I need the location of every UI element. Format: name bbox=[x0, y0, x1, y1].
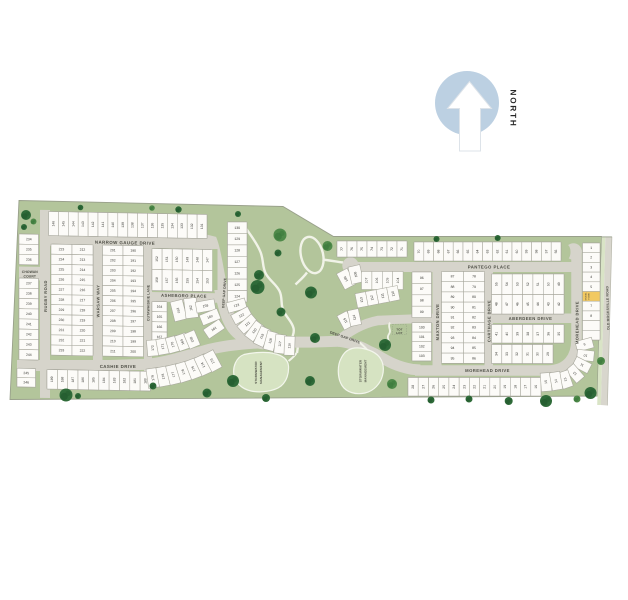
svg-text:HOME: HOME bbox=[588, 292, 591, 299]
svg-text:57: 57 bbox=[544, 250, 548, 254]
svg-text:29: 29 bbox=[546, 352, 550, 356]
svg-text:154: 154 bbox=[195, 278, 199, 284]
svg-text:232: 232 bbox=[59, 338, 65, 342]
svg-text:8: 8 bbox=[590, 314, 592, 318]
svg-text:64: 64 bbox=[476, 250, 480, 254]
svg-text:CHOWAN: CHOWAN bbox=[22, 270, 38, 274]
svg-text:75: 75 bbox=[360, 247, 364, 251]
svg-text:97: 97 bbox=[420, 287, 424, 291]
svg-text:181: 181 bbox=[133, 378, 137, 384]
svg-text:191: 191 bbox=[130, 259, 136, 263]
svg-text:193: 193 bbox=[130, 279, 136, 283]
svg-text:59: 59 bbox=[525, 250, 529, 254]
svg-text:19: 19 bbox=[503, 385, 507, 389]
svg-text:45: 45 bbox=[526, 302, 530, 306]
svg-text:MOREHEAD DRIVE: MOREHEAD DRIVE bbox=[574, 301, 579, 344]
svg-text:158: 158 bbox=[155, 277, 159, 283]
svg-text:70: 70 bbox=[417, 250, 421, 254]
svg-text:197: 197 bbox=[130, 319, 136, 323]
svg-text:141: 141 bbox=[101, 222, 105, 228]
svg-text:54: 54 bbox=[505, 282, 509, 286]
svg-text:157: 157 bbox=[165, 277, 169, 283]
svg-text:198: 198 bbox=[130, 329, 136, 333]
svg-text:185: 185 bbox=[92, 377, 96, 383]
svg-text:153: 153 bbox=[205, 278, 209, 284]
svg-text:94: 94 bbox=[451, 346, 455, 350]
svg-text:39: 39 bbox=[515, 332, 519, 336]
svg-text:187: 187 bbox=[71, 377, 75, 383]
svg-text:7: 7 bbox=[590, 304, 592, 308]
svg-text:195: 195 bbox=[130, 299, 136, 303]
svg-text:117: 117 bbox=[278, 341, 283, 347]
svg-text:RUGBY ROAD: RUGBY ROAD bbox=[43, 280, 48, 312]
svg-text:210: 210 bbox=[110, 339, 116, 343]
svg-text:186: 186 bbox=[81, 377, 85, 383]
svg-text:NORTH: NORTH bbox=[509, 90, 518, 128]
svg-text:34: 34 bbox=[495, 352, 499, 356]
svg-text:24: 24 bbox=[452, 385, 456, 389]
svg-text:43: 43 bbox=[547, 302, 551, 306]
svg-text:224: 224 bbox=[59, 257, 65, 261]
svg-text:228: 228 bbox=[59, 298, 65, 302]
svg-text:98: 98 bbox=[420, 299, 424, 303]
svg-text:STORMWATER: STORMWATER bbox=[359, 359, 363, 382]
svg-text:55: 55 bbox=[495, 282, 499, 286]
svg-text:MOREHEAD DRIVE: MOREHEAD DRIVE bbox=[465, 368, 510, 373]
svg-text:MANAGEMENT: MANAGEMENT bbox=[364, 360, 368, 383]
svg-text:65: 65 bbox=[466, 250, 470, 254]
svg-text:MAXTON DRIVE: MAXTON DRIVE bbox=[435, 304, 440, 341]
svg-text:201: 201 bbox=[110, 248, 116, 252]
svg-text:242: 242 bbox=[26, 332, 32, 336]
svg-text:16: 16 bbox=[534, 385, 538, 389]
svg-text:128: 128 bbox=[234, 249, 240, 253]
svg-text:42: 42 bbox=[557, 302, 561, 306]
svg-text:139: 139 bbox=[121, 222, 125, 228]
svg-text:140: 140 bbox=[111, 222, 115, 228]
svg-text:CASHIE DRIVE: CASHIE DRIVE bbox=[100, 364, 137, 369]
svg-text:WARSAW WAY: WARSAW WAY bbox=[96, 285, 101, 318]
svg-text:234: 234 bbox=[26, 237, 32, 241]
svg-text:ASHEBORO PLACE: ASHEBORO PLACE bbox=[161, 293, 207, 299]
svg-text:MANAGEMENT: MANAGEMENT bbox=[259, 361, 263, 384]
svg-text:142: 142 bbox=[91, 221, 95, 227]
svg-text:74: 74 bbox=[370, 247, 374, 251]
svg-text:189: 189 bbox=[50, 376, 54, 382]
svg-text:93: 93 bbox=[451, 336, 455, 340]
svg-text:4: 4 bbox=[590, 275, 592, 279]
svg-text:221: 221 bbox=[80, 339, 86, 343]
svg-text:46: 46 bbox=[515, 302, 519, 306]
svg-text:143: 143 bbox=[81, 221, 85, 227]
svg-text:73: 73 bbox=[380, 247, 384, 251]
svg-text:78: 78 bbox=[472, 275, 476, 279]
svg-text:22: 22 bbox=[473, 385, 477, 389]
svg-text:21: 21 bbox=[483, 385, 487, 389]
svg-text:135: 135 bbox=[160, 223, 164, 229]
svg-text:103: 103 bbox=[419, 354, 425, 358]
svg-text:218: 218 bbox=[80, 308, 86, 312]
svg-text:58: 58 bbox=[535, 250, 539, 254]
svg-text:241: 241 bbox=[26, 322, 32, 326]
svg-text:PANTEGO PLACE: PANTEGO PLACE bbox=[468, 265, 511, 270]
svg-text:33: 33 bbox=[505, 352, 509, 356]
svg-text:164: 164 bbox=[157, 305, 163, 309]
svg-text:220: 220 bbox=[80, 329, 86, 333]
svg-text:MODEL: MODEL bbox=[585, 292, 588, 301]
svg-text:238: 238 bbox=[26, 292, 32, 296]
svg-text:116: 116 bbox=[287, 343, 291, 349]
svg-text:26: 26 bbox=[432, 385, 436, 389]
svg-text:203: 203 bbox=[110, 268, 116, 272]
svg-text:166: 166 bbox=[157, 325, 163, 329]
svg-text:52: 52 bbox=[526, 282, 530, 286]
svg-text:246: 246 bbox=[23, 380, 29, 384]
svg-text:149: 149 bbox=[185, 257, 189, 263]
svg-text:86: 86 bbox=[472, 356, 476, 360]
svg-text:244: 244 bbox=[26, 353, 32, 357]
svg-text:136: 136 bbox=[151, 223, 155, 229]
svg-text:196: 196 bbox=[130, 309, 136, 313]
svg-text:95: 95 bbox=[451, 356, 455, 360]
svg-text:83: 83 bbox=[472, 326, 476, 330]
svg-text:44: 44 bbox=[536, 302, 540, 306]
svg-text:206: 206 bbox=[110, 299, 116, 303]
svg-text:106: 106 bbox=[375, 278, 379, 284]
svg-text:2: 2 bbox=[590, 256, 592, 260]
svg-text:212: 212 bbox=[80, 248, 86, 252]
svg-text:213: 213 bbox=[80, 258, 86, 262]
svg-text:200: 200 bbox=[130, 350, 136, 354]
svg-text:80: 80 bbox=[472, 295, 476, 299]
svg-text:226: 226 bbox=[59, 278, 65, 282]
svg-text:20: 20 bbox=[493, 385, 497, 389]
svg-text:81: 81 bbox=[472, 305, 476, 309]
svg-text:41: 41 bbox=[495, 332, 499, 336]
svg-text:69: 69 bbox=[427, 250, 431, 254]
svg-text:165: 165 bbox=[157, 315, 163, 319]
svg-text:156: 156 bbox=[175, 277, 179, 283]
svg-text:222: 222 bbox=[80, 349, 86, 353]
svg-text:30: 30 bbox=[536, 352, 540, 356]
svg-text:190: 190 bbox=[130, 249, 136, 253]
svg-text:229: 229 bbox=[59, 308, 65, 312]
svg-text:67: 67 bbox=[446, 250, 450, 254]
svg-text:207: 207 bbox=[110, 309, 116, 313]
svg-text:82: 82 bbox=[472, 316, 476, 320]
svg-text:133: 133 bbox=[180, 223, 184, 229]
svg-text:225: 225 bbox=[59, 268, 65, 272]
svg-text:3: 3 bbox=[590, 265, 592, 269]
svg-text:180: 180 bbox=[143, 378, 147, 384]
svg-text:155: 155 bbox=[185, 278, 189, 284]
svg-text:87: 87 bbox=[451, 275, 455, 279]
svg-text:151: 151 bbox=[165, 256, 169, 262]
svg-text:131: 131 bbox=[200, 223, 204, 229]
svg-text:89: 89 bbox=[451, 295, 455, 299]
svg-text:239: 239 bbox=[26, 302, 32, 306]
svg-text:76: 76 bbox=[350, 247, 354, 251]
svg-text:63: 63 bbox=[486, 250, 490, 254]
svg-text:150: 150 bbox=[175, 256, 179, 262]
svg-text:18: 18 bbox=[513, 385, 517, 389]
svg-text:99: 99 bbox=[420, 310, 424, 314]
svg-text:90: 90 bbox=[451, 305, 455, 309]
svg-text:84: 84 bbox=[472, 336, 476, 340]
svg-text:184: 184 bbox=[102, 377, 106, 383]
svg-text:50: 50 bbox=[547, 282, 551, 286]
svg-text:152: 152 bbox=[155, 256, 159, 262]
svg-text:CUTAWHISKIE LANE: CUTAWHISKIE LANE bbox=[146, 284, 150, 321]
svg-text:CARTHAGE DRIVE: CARTHAGE DRIVE bbox=[486, 300, 491, 342]
svg-text:211: 211 bbox=[110, 349, 116, 353]
svg-text:102: 102 bbox=[419, 345, 425, 349]
svg-text:219: 219 bbox=[80, 318, 86, 322]
svg-text:72: 72 bbox=[390, 247, 394, 251]
svg-text:37: 37 bbox=[536, 332, 540, 336]
svg-text:124: 124 bbox=[234, 294, 240, 298]
svg-text:205: 205 bbox=[110, 289, 116, 293]
svg-text:61: 61 bbox=[505, 250, 509, 254]
svg-text:53: 53 bbox=[515, 282, 519, 286]
svg-text:235: 235 bbox=[26, 247, 32, 251]
svg-text:100: 100 bbox=[419, 325, 425, 329]
svg-text:147: 147 bbox=[205, 257, 209, 263]
svg-text:27: 27 bbox=[421, 385, 425, 389]
svg-text:216: 216 bbox=[80, 288, 86, 292]
svg-text:88: 88 bbox=[451, 285, 455, 289]
svg-text:134: 134 bbox=[170, 223, 174, 229]
svg-text:199: 199 bbox=[130, 340, 136, 344]
svg-text:146: 146 bbox=[52, 221, 56, 227]
svg-text:104: 104 bbox=[396, 278, 400, 284]
svg-text:209: 209 bbox=[110, 329, 116, 333]
svg-text:56: 56 bbox=[554, 250, 558, 254]
svg-text:227: 227 bbox=[59, 288, 65, 292]
svg-text:COURT: COURT bbox=[24, 274, 37, 278]
svg-text:36: 36 bbox=[547, 332, 551, 336]
svg-text:125: 125 bbox=[234, 283, 240, 287]
svg-text:62: 62 bbox=[495, 250, 499, 254]
svg-text:5: 5 bbox=[590, 285, 592, 289]
svg-text:31: 31 bbox=[525, 352, 529, 356]
svg-text:38: 38 bbox=[526, 332, 530, 336]
svg-text:1: 1 bbox=[590, 246, 592, 250]
svg-text:48: 48 bbox=[495, 302, 499, 306]
svg-text:182: 182 bbox=[123, 378, 127, 384]
svg-text:236: 236 bbox=[26, 258, 32, 262]
svg-text:188: 188 bbox=[61, 377, 65, 383]
svg-text:129: 129 bbox=[234, 237, 240, 241]
svg-text:237: 237 bbox=[26, 281, 32, 285]
svg-text:LOT: LOT bbox=[396, 331, 403, 335]
svg-text:32: 32 bbox=[515, 352, 519, 356]
svg-text:35: 35 bbox=[557, 332, 561, 336]
svg-text:107: 107 bbox=[365, 278, 369, 284]
svg-text:STORMWATER: STORMWATER bbox=[254, 361, 258, 384]
svg-text:202: 202 bbox=[110, 258, 116, 262]
svg-text:243: 243 bbox=[26, 343, 32, 347]
svg-text:183: 183 bbox=[112, 377, 116, 383]
svg-text:127: 127 bbox=[234, 260, 240, 264]
svg-text:138: 138 bbox=[131, 222, 135, 228]
svg-text:49: 49 bbox=[557, 282, 561, 286]
svg-text:60: 60 bbox=[515, 250, 519, 254]
svg-text:23: 23 bbox=[462, 385, 466, 389]
svg-text:204: 204 bbox=[110, 279, 116, 283]
svg-text:17: 17 bbox=[524, 385, 528, 389]
svg-text:144: 144 bbox=[71, 221, 75, 227]
svg-text:192: 192 bbox=[130, 269, 136, 273]
svg-text:132: 132 bbox=[190, 223, 194, 229]
svg-text:240: 240 bbox=[26, 312, 32, 316]
svg-text:85: 85 bbox=[472, 346, 476, 350]
svg-text:223: 223 bbox=[59, 247, 65, 251]
svg-text:47: 47 bbox=[505, 302, 509, 306]
svg-text:105: 105 bbox=[386, 278, 390, 284]
svg-text:172: 172 bbox=[151, 345, 155, 351]
svg-text:25: 25 bbox=[442, 385, 446, 389]
svg-text:10: 10 bbox=[583, 353, 587, 357]
svg-text:214: 214 bbox=[80, 268, 86, 272]
svg-text:92: 92 bbox=[451, 326, 455, 330]
svg-text:77: 77 bbox=[340, 247, 344, 251]
svg-text:79: 79 bbox=[472, 285, 476, 289]
svg-text:130: 130 bbox=[234, 226, 240, 230]
svg-text:ABERDEEN DRIVE: ABERDEEN DRIVE bbox=[509, 316, 553, 321]
svg-text:96: 96 bbox=[420, 276, 424, 280]
svg-text:245: 245 bbox=[23, 371, 29, 375]
svg-text:179: 179 bbox=[151, 375, 156, 381]
svg-text:68: 68 bbox=[437, 250, 441, 254]
svg-text:217: 217 bbox=[80, 298, 86, 302]
svg-text:148: 148 bbox=[195, 257, 199, 263]
svg-text:101: 101 bbox=[419, 335, 425, 339]
svg-text:215: 215 bbox=[80, 278, 86, 282]
svg-text:66: 66 bbox=[456, 250, 460, 254]
svg-text:230: 230 bbox=[59, 318, 65, 322]
svg-text:194: 194 bbox=[130, 289, 136, 293]
svg-text:126: 126 bbox=[234, 272, 240, 276]
svg-text:208: 208 bbox=[110, 319, 116, 323]
svg-text:162: 162 bbox=[189, 305, 194, 311]
svg-text:145: 145 bbox=[61, 221, 65, 227]
svg-text:233: 233 bbox=[59, 348, 65, 352]
svg-text:137: 137 bbox=[141, 222, 145, 228]
svg-text:91: 91 bbox=[451, 316, 455, 320]
svg-text:51: 51 bbox=[536, 282, 540, 286]
svg-text:28: 28 bbox=[411, 385, 415, 389]
svg-text:15: 15 bbox=[544, 380, 548, 384]
svg-text:231: 231 bbox=[59, 328, 65, 332]
svg-text:40: 40 bbox=[505, 332, 509, 336]
svg-text:71: 71 bbox=[400, 247, 404, 251]
